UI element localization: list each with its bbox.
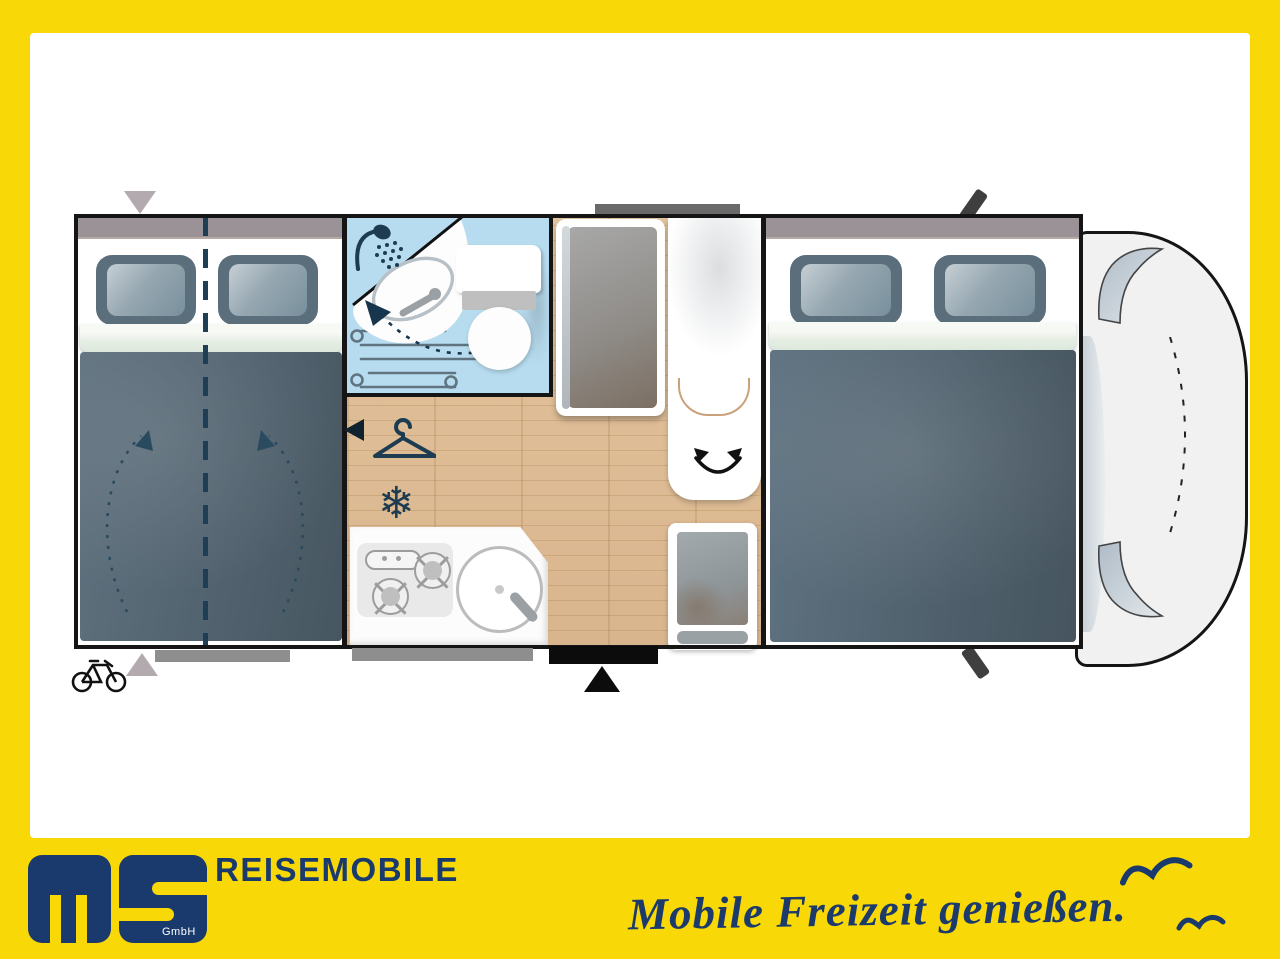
brand-wordmark: REISEMOBILE [215,851,459,889]
bike-rack-icon [70,652,128,694]
seagull-icon-small [1176,910,1226,938]
logo-m-slot [76,895,87,943]
rear-marker-arrow-bottom [126,653,158,676]
kitchen-skirt-bar [352,648,533,661]
logo-s-slot-lower [119,908,174,921]
entry-door-arrow [584,666,620,692]
screenshot-canvas: ❄ GmbH REISEMOBILE Mobile Freizeit genie… [0,0,1280,959]
logo-m-slot [50,895,61,943]
rear-marker-arrow-top [124,191,156,214]
cab-side-window-top-icon [1092,243,1184,327]
cab-side-window-bottom-icon [1092,538,1184,622]
rear-skirt-bar [155,650,290,662]
cab-hood-dashed-line [1164,337,1204,533]
logo-gmbh-label: GmbH [162,926,196,938]
seagull-icon-large [1118,853,1194,891]
logo-s-slot-upper [152,882,207,895]
brand-tagline: Mobile Freizeit genießen. [628,880,1128,941]
logo-m-block [28,855,111,943]
vehicle-body-outline [74,214,1083,649]
entry-door-bar [549,646,658,664]
